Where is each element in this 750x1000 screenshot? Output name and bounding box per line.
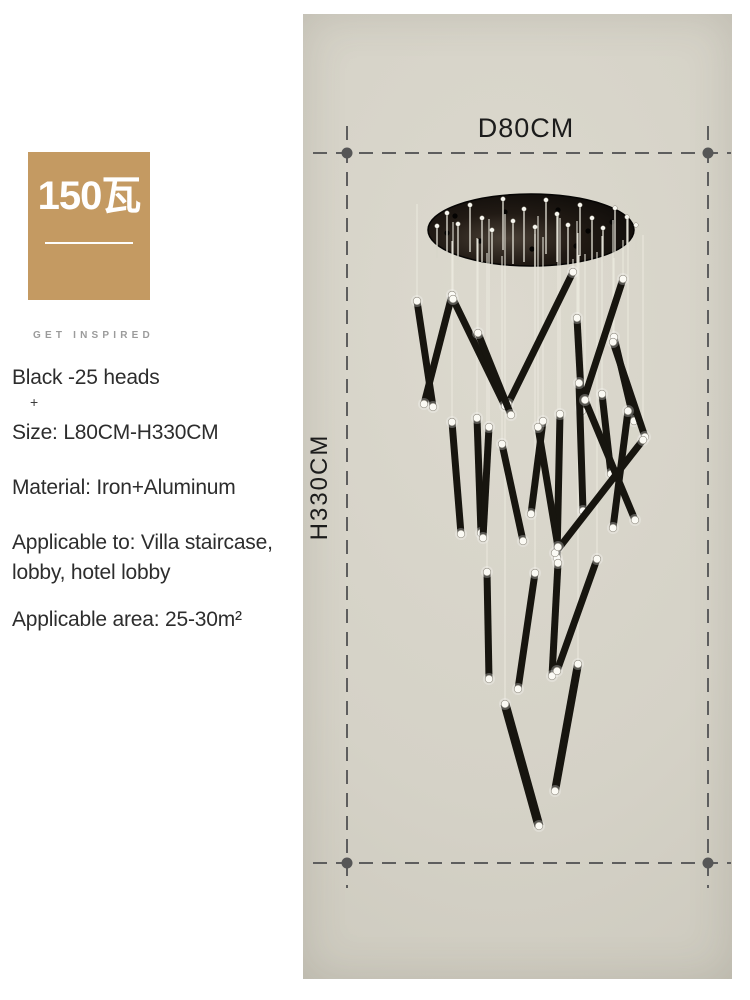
rod-tip <box>551 787 559 795</box>
height-dimension-label: H330CM <box>306 434 333 541</box>
pin-knob <box>555 212 560 217</box>
rod-tip <box>448 418 456 426</box>
pin-knob <box>634 223 639 228</box>
rod <box>518 573 535 689</box>
rod-tip <box>581 396 589 404</box>
rod <box>478 333 511 415</box>
pin-knob <box>501 197 506 202</box>
dim-corner-dot <box>703 148 714 159</box>
pin-knob <box>445 211 450 216</box>
rod-tip <box>479 534 487 542</box>
pin-knob <box>456 222 461 227</box>
rod-tip <box>519 537 527 545</box>
rod-tip <box>593 555 601 563</box>
rod <box>505 704 539 826</box>
rod-tip <box>507 411 515 419</box>
rod <box>557 559 597 671</box>
rod-tip <box>498 440 506 448</box>
rod-tip <box>527 510 535 518</box>
rod-tip <box>554 543 562 551</box>
rod-tip <box>609 524 617 532</box>
rod-tip <box>420 400 428 408</box>
chandelier-dimension-diagram: D80CM H330CM <box>303 14 732 979</box>
tagline: GET INSPIRED <box>33 330 154 341</box>
rod <box>508 272 573 404</box>
rod <box>552 563 558 676</box>
product-photo-panel: D80CM H330CM <box>303 14 732 979</box>
badge-divider <box>45 242 133 244</box>
rod-tip <box>598 390 606 398</box>
wattage-badge: 150瓦 <box>28 152 150 300</box>
pin-knob <box>490 228 495 233</box>
pin-knob <box>566 223 571 228</box>
rod-tip <box>534 423 542 431</box>
wattage-label: 150瓦 <box>28 174 150 218</box>
spec-size: Size: L80CM-H330CM <box>12 421 218 445</box>
rod <box>424 295 452 404</box>
rod-tip <box>514 685 522 693</box>
pin-knob <box>613 206 618 211</box>
rod-tip <box>574 660 582 668</box>
rod-tip <box>609 338 617 346</box>
rod-tip <box>639 436 647 444</box>
pin-knob <box>578 203 583 208</box>
spec-area: Applicable area: 25-30m² <box>12 608 242 632</box>
rod-tip <box>473 414 481 422</box>
canopy-hole <box>452 213 457 218</box>
spec-plus-sign: + <box>30 394 38 410</box>
pin-knob <box>468 203 473 208</box>
rod-tip <box>457 530 465 538</box>
rod-tip <box>485 423 493 431</box>
rod-tip <box>449 295 457 303</box>
rod-tip <box>619 275 627 283</box>
light-rods <box>411 266 651 832</box>
width-dimension-label: D80CM <box>478 113 575 143</box>
spec-applicable-line1: Applicable to: Villa staircase, <box>12 531 273 555</box>
rod-tip <box>531 569 539 577</box>
rod-tip <box>556 410 564 418</box>
canopy-hole <box>585 228 590 233</box>
dim-corner-dot <box>342 148 353 159</box>
rod-tip <box>624 407 632 415</box>
pin-knob <box>544 198 549 203</box>
rod-tip <box>501 700 509 708</box>
rod-tip <box>573 314 581 322</box>
rod-tip <box>554 559 562 567</box>
pin-knob <box>435 224 440 229</box>
spec-applicable-line2: lobby, hotel lobby <box>12 561 170 585</box>
rod <box>477 418 481 533</box>
pin-knob <box>522 207 527 212</box>
pin-knob <box>601 226 606 231</box>
pin-knob <box>533 225 538 230</box>
pin-knob <box>625 215 630 220</box>
canopy-hole <box>609 219 614 224</box>
pin-knob <box>590 216 595 221</box>
rod <box>483 427 489 538</box>
canopy-hole <box>529 246 534 251</box>
dim-corner-dot <box>342 858 353 869</box>
spec-material: Material: Iron+Aluminum <box>12 476 236 500</box>
rod-tip <box>413 297 421 305</box>
rod-tip <box>483 568 491 576</box>
rod-tip <box>569 268 577 276</box>
rod <box>452 422 461 534</box>
dim-corner-dot <box>703 858 714 869</box>
rod-tip <box>429 403 437 411</box>
pin-knob <box>511 219 516 224</box>
product-spec-page: 150瓦 GET INSPIRED Black -25 heads + Size… <box>0 0 750 1000</box>
rod-tip <box>575 379 583 387</box>
rod <box>555 664 578 791</box>
rod-tip <box>485 675 493 683</box>
rod <box>487 572 489 679</box>
rod-tip <box>553 667 561 675</box>
spec-heads: Black -25 heads <box>12 366 160 390</box>
rod-tip <box>535 822 543 830</box>
rod-tip <box>474 329 482 337</box>
rod <box>555 440 643 553</box>
rod-tip <box>631 516 639 524</box>
pin-knob <box>480 216 485 221</box>
